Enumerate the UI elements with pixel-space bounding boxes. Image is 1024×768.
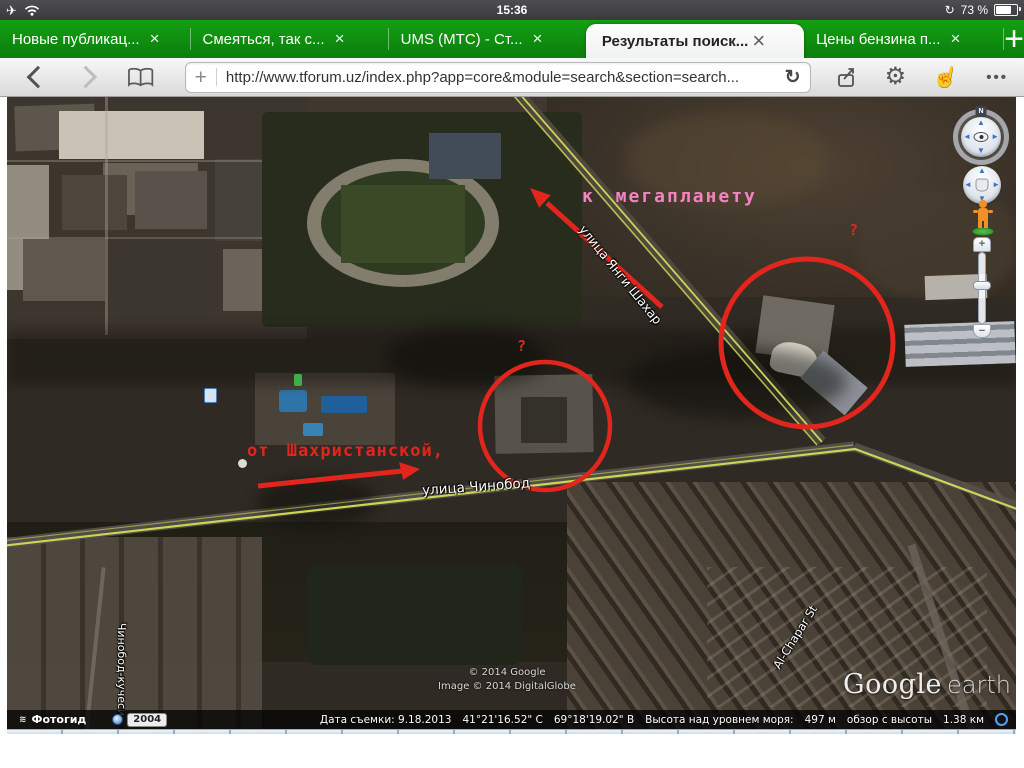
tab-label: Результаты поиск... bbox=[602, 33, 748, 50]
annotation-question-mark-center: ? bbox=[517, 337, 526, 355]
share-icon[interactable] bbox=[835, 66, 858, 89]
tab-search-results-active[interactable]: Результаты поиск... × bbox=[586, 24, 804, 58]
poi-marker-photo[interactable] bbox=[204, 388, 217, 403]
eye-altitude-icon bbox=[995, 713, 1008, 726]
hand-icon bbox=[976, 179, 989, 192]
annotation-question-mark-right: ? bbox=[849, 221, 858, 239]
photo-guide-button[interactable]: ≋ Фотогид bbox=[19, 713, 86, 726]
eye-altitude-value: 1.38 км bbox=[943, 714, 984, 726]
compass-north-marker[interactable]: N bbox=[976, 106, 987, 117]
pegman-base bbox=[972, 227, 994, 236]
poi-marker-waterslide[interactable] bbox=[294, 374, 302, 386]
tab-ceny-benzina[interactable]: Цены бензина п... × bbox=[804, 20, 1003, 58]
look-left-arrow[interactable]: ◄ bbox=[963, 133, 971, 141]
attribution-digitalglobe: Image © 2014 DigitalGlobe bbox=[402, 680, 612, 694]
annotation-text-shakhristanskaya: от Шахристанской, bbox=[247, 441, 444, 461]
annotation-arrow-right-shaft bbox=[258, 471, 403, 486]
zoom-in-button[interactable]: + bbox=[973, 237, 991, 252]
bookmarks-icon[interactable] bbox=[127, 67, 154, 87]
map-attribution: © 2014 Google Image © 2014 DigitalGlobe bbox=[402, 666, 612, 694]
reload-icon[interactable]: ↻ bbox=[785, 68, 801, 87]
look-up-arrow[interactable]: ▲ bbox=[977, 119, 985, 127]
street-view-pegman[interactable] bbox=[972, 200, 994, 236]
pegman-head bbox=[979, 200, 987, 208]
zoom-slider-handle[interactable] bbox=[973, 281, 991, 290]
longitude-value: 69°18'19.02" В bbox=[554, 714, 634, 726]
more-menu-icon[interactable]: ••• bbox=[986, 69, 1008, 86]
google-earth-map[interactable]: к мегапланету от Шахристанской, ? ? улиц… bbox=[7, 97, 1016, 734]
eye-icon bbox=[974, 132, 989, 142]
tab-close-icon[interactable]: × bbox=[950, 29, 960, 49]
map-annotation-overlay bbox=[7, 97, 1016, 734]
zoom-control[interactable]: + − bbox=[969, 237, 995, 339]
zoom-out-button[interactable]: − bbox=[973, 324, 991, 338]
annotation-circle-right bbox=[721, 259, 893, 427]
tab-label: UMS (МТС) - Ст... bbox=[401, 31, 523, 48]
poi-marker-white[interactable] bbox=[238, 459, 247, 468]
earth-status-bar: ≋ Фотогид 2004 Дата съемки: 9.18.2013 41… bbox=[7, 710, 1016, 729]
pan-control[interactable]: ▲ ▼ ◄ ► bbox=[963, 166, 1001, 204]
earth-status-readout: Дата съемки: 9.18.2013 41°21'16.52" С 69… bbox=[320, 713, 1008, 726]
photo-guide-icon: ≋ bbox=[19, 715, 27, 725]
timeline-year-box[interactable]: 2004 bbox=[127, 713, 167, 727]
annotation-circle-center bbox=[480, 362, 610, 490]
pan-right-arrow[interactable]: ► bbox=[992, 181, 1000, 189]
timeline-scrollbar[interactable] bbox=[7, 729, 1016, 734]
tab-close-icon[interactable]: × bbox=[150, 29, 160, 49]
road-chinobod-line bbox=[7, 449, 1016, 546]
street-label-chinobod-kuchesi: Чинобод-кучеси bbox=[115, 623, 128, 716]
annotation-text-megaplanet: к мегапланету bbox=[582, 186, 757, 207]
tab-close-icon[interactable]: × bbox=[533, 29, 543, 49]
tab-close-icon[interactable]: × bbox=[752, 28, 765, 54]
pegman-legs bbox=[978, 221, 988, 228]
pegman-body bbox=[978, 208, 988, 221]
new-tab-button[interactable]: + bbox=[1004, 20, 1024, 58]
eye-altitude-label: обзор с высоты bbox=[847, 714, 932, 726]
battery-icon bbox=[994, 4, 1018, 16]
history-clock-icon[interactable] bbox=[112, 714, 123, 725]
look-right-arrow[interactable]: ► bbox=[991, 133, 999, 141]
browser-toolbar: + http://www.tforum.uz/index.php?app=cor… bbox=[0, 58, 1024, 97]
tab-label: Цены бензина п... bbox=[816, 31, 940, 48]
tab-smeyatsya[interactable]: Смеяться, так с... × bbox=[191, 20, 388, 58]
browser-tab-bar: Новые публикац... × Смеяться, так с... ×… bbox=[0, 20, 1024, 58]
forward-button[interactable] bbox=[74, 66, 96, 88]
address-bar[interactable]: + http://www.tforum.uz/index.php?app=cor… bbox=[185, 62, 811, 93]
tab-novye-publikacii[interactable]: Новые публикац... × bbox=[0, 20, 190, 58]
latitude-value: 41°21'16.52" С bbox=[462, 714, 542, 726]
elevation-value: 497 м bbox=[805, 714, 836, 726]
logo-earth-text: earth bbox=[947, 671, 1011, 699]
url-text[interactable]: http://www.tforum.uz/index.php?app=core&… bbox=[226, 69, 785, 86]
capture-date: Дата съемки: 9.18.2013 bbox=[320, 714, 452, 726]
road-yangi-shahar-line-2 bbox=[514, 97, 817, 445]
look-down-arrow[interactable]: ▼ bbox=[977, 147, 985, 155]
tab-label: Смеяться, так с... bbox=[203, 31, 325, 48]
divider bbox=[216, 68, 217, 86]
pegman-arm bbox=[988, 210, 993, 213]
tab-label: Новые публикац... bbox=[12, 31, 140, 48]
ios-status-bar: ✈ 15:36 ↻ 73 % bbox=[0, 0, 1024, 20]
tab-close-icon[interactable]: × bbox=[335, 29, 345, 49]
annotation-arrow-right-head bbox=[399, 462, 420, 480]
logo-google-text: Google bbox=[843, 669, 942, 700]
road-yangi-shahar-line bbox=[519, 97, 822, 442]
compass-control[interactable]: N ▲ ▼ ◄ ► bbox=[953, 109, 1009, 165]
google-earth-logo: Googleearth bbox=[843, 669, 1011, 700]
settings-gear-icon[interactable]: ⚙ bbox=[885, 65, 907, 89]
tab-ums-mts[interactable]: UMS (МТС) - Ст... × bbox=[389, 20, 586, 58]
back-button[interactable] bbox=[27, 66, 49, 88]
pan-up-arrow[interactable]: ▲ bbox=[978, 167, 986, 175]
add-bookmark-icon[interactable]: + bbox=[195, 67, 207, 88]
elevation-label: Высота над уровнем моря: bbox=[645, 714, 793, 726]
status-time: 15:36 bbox=[0, 3, 1024, 17]
photo-guide-label: Фотогид bbox=[32, 713, 87, 726]
pointer-hand-icon[interactable]: ☝ bbox=[931, 64, 961, 90]
pan-left-arrow[interactable]: ◄ bbox=[964, 181, 972, 189]
look-joystick[interactable]: ▲ ▼ ◄ ► bbox=[961, 117, 1001, 157]
attribution-google: © 2014 Google bbox=[402, 666, 612, 680]
pan-joystick[interactable]: ▲ ▼ ◄ ► bbox=[963, 166, 1001, 204]
